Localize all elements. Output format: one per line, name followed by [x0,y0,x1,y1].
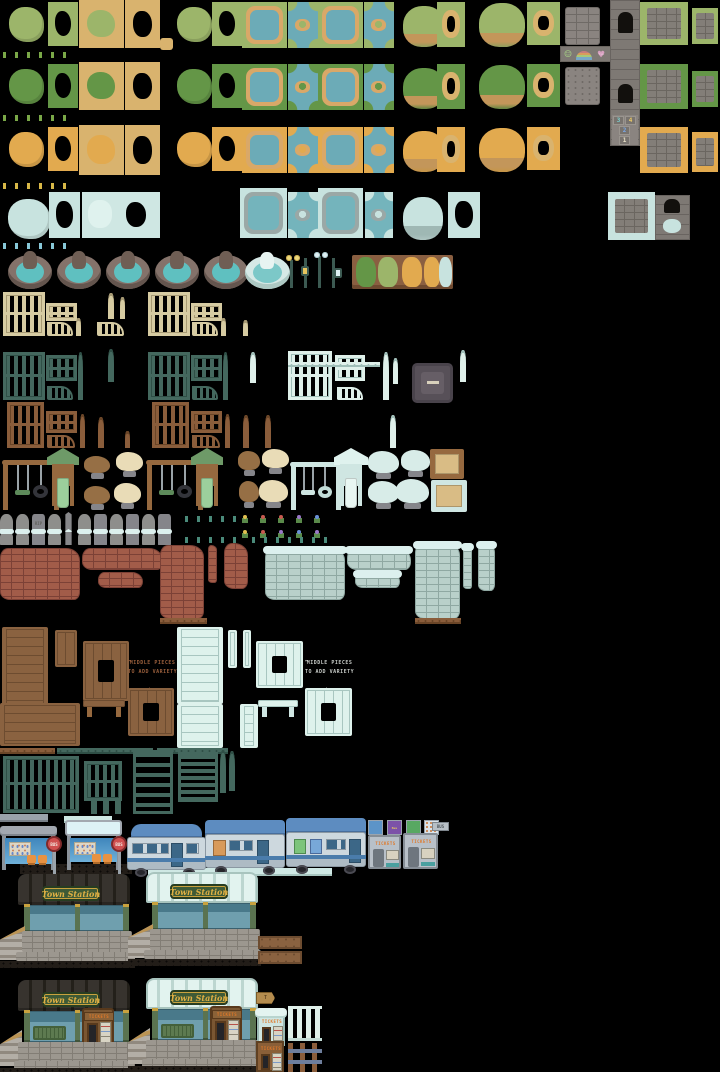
brick-column-pair [224,543,248,589]
heart-initials: T+L [597,52,606,56]
tickets-label: TICKETS [372,840,399,846]
bench [83,700,125,717]
bus-windows [326,839,346,850]
plank-bench [258,951,302,964]
tickets-label: TICKETS [259,1045,283,1051]
ftop [23,251,37,269]
bus-ad-poster [310,839,322,854]
picket-fence-panel [148,292,190,336]
sprigs [3,115,75,121]
slide [201,478,213,508]
pond-tile [318,127,363,173]
station-post [203,1008,208,1040]
pg-chain [161,465,163,490]
bus-middle [286,818,366,874]
sand-block-grass-blob [79,62,124,110]
snow-fence-post [250,352,256,383]
snow-fence-gate [337,387,363,400]
brick-grass-small [692,71,718,107]
tickets-sign: TICKETS [212,1010,242,1019]
spring-rider-bear [84,486,110,510]
spring-rider-bunny [259,480,288,508]
board-dash [427,381,439,384]
snow-fence-post [383,352,389,400]
fountain [155,255,199,289]
sandbox-winter [431,480,467,512]
lamp-bulb [322,252,328,258]
spring-rider-bear [239,481,259,508]
shelter-roof [0,826,57,836]
grass-tile-hole [48,64,78,108]
wood-fence-post [80,414,85,448]
benchtop [258,700,298,707]
spring-rider-bunny [116,452,143,477]
bus-sign-disc: BUS [46,836,62,852]
wood-fence-short [191,411,222,433]
snow-block [82,192,160,238]
gravestone-snow [158,531,171,545]
railing-panel [84,761,122,801]
ticket-booth: TICKETS [82,1008,114,1044]
pg-chain [17,465,19,490]
grass-sand-hole [527,2,560,45]
rainbow-chalk-icon [576,51,592,60]
wood-fence-short [46,411,77,433]
pond-tile [318,64,363,110]
boardwalk-platform-winter [177,704,223,748]
dark-fence-short [46,355,77,381]
railing-slats [178,752,218,802]
bus-stop-sign: BUS [46,836,63,878]
pg-leg [340,486,344,506]
bus-ad-poster [213,840,226,856]
ftop [170,251,184,269]
picket-post [243,320,248,336]
bus-windows [132,843,169,854]
station-sign: Town Station [42,992,100,1007]
picket-fence-short [46,303,77,321]
gravestone-snow [142,531,155,545]
boardwalk-hole-winter [305,688,352,736]
station-base [150,929,260,950]
sprigs [185,516,240,522]
tickets-label: TICKETS [407,838,436,844]
pg-chain [312,467,314,491]
snow-pond-tile [240,188,287,238]
ground-strip [128,959,261,966]
snow-blob [8,199,50,239]
brick-grass-small [692,132,718,172]
spring-rider-bunny [262,449,289,474]
tleg [91,801,97,814]
ticket-machines: TICKETSTICKETS [368,833,438,869]
grass-blob [9,69,44,104]
shelter-seat [92,854,101,862]
shelter-seat [27,855,36,863]
sprigs [3,243,75,249]
boardwalk-tall-winter [177,627,223,704]
pg-chain [27,465,29,490]
lamp-post [318,256,321,288]
kiosk-body: TICKETS [256,1041,284,1072]
snow-pond-tile [318,188,363,238]
wood-fence-post [98,417,104,448]
station-post [152,1008,158,1040]
snow-fence-post [393,358,398,384]
dark-fence-post [223,352,228,400]
sand-block-hole [125,125,160,175]
picket-post [108,293,114,319]
grass-sand-hole [437,127,465,172]
spring-rider-winter [401,450,430,477]
kiosk-poster [272,1053,282,1071]
brick-column [208,545,217,583]
swing-seat [159,490,174,495]
bus-door [171,843,183,867]
snow-hole [663,219,681,233]
street-lamps [286,252,348,290]
dark-fence-gate [47,386,73,400]
lantern [334,268,342,278]
boardwalk-hole-winter [256,641,303,688]
slide-tower [46,448,80,510]
ticket-machine: TICKETS [403,833,438,869]
mdark [408,847,419,867]
boardwalk-platform-winter [240,704,258,748]
station-base [18,1042,132,1061]
hedge-bush [424,257,440,287]
dark-fence-panel [3,352,45,400]
lamp-bulb [286,255,292,261]
picket-post [120,297,125,319]
gravestone-snow [110,531,123,545]
grass-blob [9,7,44,42]
wood-fence-post [225,414,230,448]
snow-brick-mid [355,572,400,588]
notice-board [412,363,453,403]
bus-sign-disc: BUS [111,836,127,852]
boardwalk-platform [0,703,80,746]
ground-strip [128,1066,261,1072]
hedge-bush [356,257,376,287]
fountain [204,255,248,289]
train-station-dark-tickets: TICKETSTown Station [0,980,135,1072]
train-station-dark: Town Station [0,874,135,968]
station-base [22,931,132,952]
snow-water-tile [288,192,318,238]
bus-door [349,839,361,863]
brick-grass-tile [640,127,688,173]
snow-brick-column [463,545,472,589]
snow-stone-arch [655,195,690,240]
obelisk-snow [64,529,73,545]
grass-tile-hole [212,2,242,46]
gravestone-snow [48,531,61,545]
mdark [373,849,384,867]
tleg [103,801,109,814]
lamp-bulb [294,255,300,261]
ftop [72,251,86,269]
pg-chain [40,465,42,485]
bus-window [186,843,199,854]
gravestone-snow [126,531,139,545]
curb-strip [0,814,48,822]
fountain-winter [245,256,290,289]
brick-wall-tall [160,545,204,619]
boardwalk-planks [55,630,77,667]
sand-block-grass-blob [79,125,124,175]
dark-fence-panel [148,352,190,400]
bus-stripe [286,855,366,859]
grass-blob [177,7,212,42]
brick-wall-strip [82,548,163,570]
t-arrow-sign: T [256,992,275,1004]
ground-strip [0,1068,135,1072]
hedge-bush [439,257,452,287]
pg-chain [303,467,305,491]
pg-leg [3,464,8,510]
snow-brick-tall [415,543,460,619]
arch-hole [664,199,680,213]
gravestone-snow [78,531,91,545]
station-base [146,1040,258,1059]
spring-rider-winter [368,451,399,479]
snow-hill-mound [403,197,443,240]
hedge-bush [378,257,398,287]
plank-winter [228,630,237,668]
ticket-machine: TICKETS [368,835,401,869]
water-tile-island [288,2,318,48]
sprigs [3,52,75,58]
route-map-poster [9,842,31,856]
bus-ad-poster [294,839,306,854]
arrow-down-icon: ↓ [148,676,158,686]
hopscotch-3: 3 [613,116,624,125]
grass-tile-hole [212,64,242,108]
middle-pieces-note: MIDDLE PIECES TO ADD VARIETY←↓ [305,650,361,688]
plank-winter [243,630,251,668]
water-tile-island [364,64,394,110]
station-post [75,1010,80,1042]
brick-grass-small [692,8,718,44]
booth-poster [100,1022,111,1044]
dark-fence-gate [192,386,218,400]
sprigs [252,537,328,543]
sand-nub [160,38,173,50]
snow-water-tile [365,192,393,238]
pg-leg [116,707,121,717]
station-base [144,950,261,959]
spring-rider-winter [396,479,429,509]
ground-strip [0,961,135,968]
tire-swing [318,486,332,498]
lamp-bulb [314,252,320,258]
hill-mound [479,65,525,109]
bench-winter [258,700,298,717]
picket-fence-winter [288,1006,322,1041]
stone-tile [565,7,600,45]
mslot [386,863,399,867]
bus-stripe [127,858,206,862]
pond-tile [242,64,287,110]
station-bench [161,1024,194,1038]
kiosk-window [261,1054,270,1070]
gravestone-snow [0,531,13,545]
hill-mound [479,3,525,47]
water-tile-island [288,127,318,173]
railing-panel [3,756,79,813]
pg-roof [334,448,368,465]
pg-chain [324,467,326,486]
smiley-chalk-icon: ☺ [562,48,574,60]
lamp-post [290,260,293,288]
pg-chain [184,465,186,485]
brick-grass-tile [640,2,688,45]
station-base [16,952,135,961]
swing-seat [15,490,30,495]
pond-tile [242,127,287,173]
snow-fence-rail [288,362,380,367]
snow-brick-column-pair [478,543,495,591]
plank-bench [258,936,302,949]
train-station-winter: Town Station [128,872,261,968]
mslot [421,862,435,866]
wood-fence-post [265,415,271,448]
spring-rider-bunny [114,483,141,509]
wood-fence-gate [47,435,75,448]
sandbox [430,449,464,479]
arrow-left-icon: ← [305,648,315,658]
gravestone-snow [16,531,29,545]
picket-gate [97,322,124,336]
snow-brick-strip [347,548,411,570]
sand-block-grass-blob [79,0,124,48]
wood-fence-panel [7,402,44,448]
pg-leg [289,707,294,717]
gravestone-snow [32,531,45,545]
tickets-label: TICKETS [260,1018,284,1024]
snow-fence-short [335,355,365,381]
arrow-down-icon: ↓ [325,676,335,686]
pg-leg [196,486,200,506]
arch-hole [618,84,633,103]
rail-strip [415,618,461,624]
spring-rider-winter [368,481,399,509]
pg-roof [47,448,79,465]
grass-sand-hole [527,127,560,170]
boardwalk-hole [128,688,174,736]
grass-sand-hole [527,64,560,107]
station-bench [33,1026,66,1040]
rail-fence-brown-blue [288,1043,322,1072]
pg-leg [358,486,362,506]
picket-fence-short [191,303,222,321]
brick-wall-mid [98,572,143,588]
pond-tile [242,2,287,48]
picket-post [76,318,81,336]
railing-post [229,751,235,791]
arch-hole [618,12,633,33]
flower [296,515,302,523]
mscreen [421,848,435,859]
bus-wheel [296,865,308,874]
boardwalk-hole [83,641,129,701]
slide [57,478,69,508]
pg-leg [52,486,56,506]
gravestone-snow [94,531,107,545]
sprigs [3,183,75,189]
booth-poster [228,1020,239,1042]
wood-fence-post [125,431,130,448]
sand-block-hole [125,62,160,110]
bus-wheel [263,866,275,875]
stone-path-vertical: 3421 [610,0,640,146]
rail-strip [0,748,55,754]
slide-tower-winter [333,448,369,510]
flower [242,515,248,523]
flower-row [240,514,332,524]
ticket-kiosk-brown: TICKETS [255,1041,285,1072]
railing-ladder [133,750,173,814]
bus-middle [205,820,285,875]
benchtop [83,700,125,707]
ftop [219,251,233,269]
brick-grass-tile [640,64,688,109]
station-sign: Town Station [170,990,228,1005]
bus-door [257,840,269,864]
flower [278,515,284,523]
grass-blob [9,132,44,167]
bus-windows [229,840,253,851]
water-tile-island [288,64,318,110]
bus-stripe [205,856,285,860]
snow-brick-grass [608,192,655,240]
bus-wheel [344,865,356,874]
sand-block-hole [125,0,160,48]
tleg [115,801,121,814]
ticket-booth: TICKETS [210,1006,242,1042]
slide [345,478,357,508]
dark-fence-short [191,355,222,381]
flower [260,515,266,523]
rail-strip [160,618,207,624]
hopscotch-4: 4 [625,116,636,125]
pg-leg [291,466,296,510]
water-tile-island [364,127,394,173]
fountain [106,255,150,289]
snow-cap [255,1008,287,1016]
flower [314,515,320,523]
fountain [8,255,52,289]
pg-leg [214,486,218,506]
grass-sand-hole [437,64,465,109]
lantern [301,266,309,276]
railing-post [220,750,226,793]
stone-tile-plain [565,67,600,105]
grass-blob [177,132,212,167]
grass-tile-hole [48,2,78,46]
wood-fence-panel [152,402,189,448]
mscreen [386,850,399,860]
spritesheet-canvas: ☺♥T+L☀3421RIPMIDDLE PIECES TO ADD VARIET… [0,0,720,1072]
slide-tower [190,448,224,510]
pg-leg [87,707,92,717]
picket-post [221,318,226,336]
pg-leg [70,486,74,506]
booth-window [87,1023,98,1044]
spring-rider-bear [238,451,260,476]
bus-stop-sign: BUS [111,836,128,878]
